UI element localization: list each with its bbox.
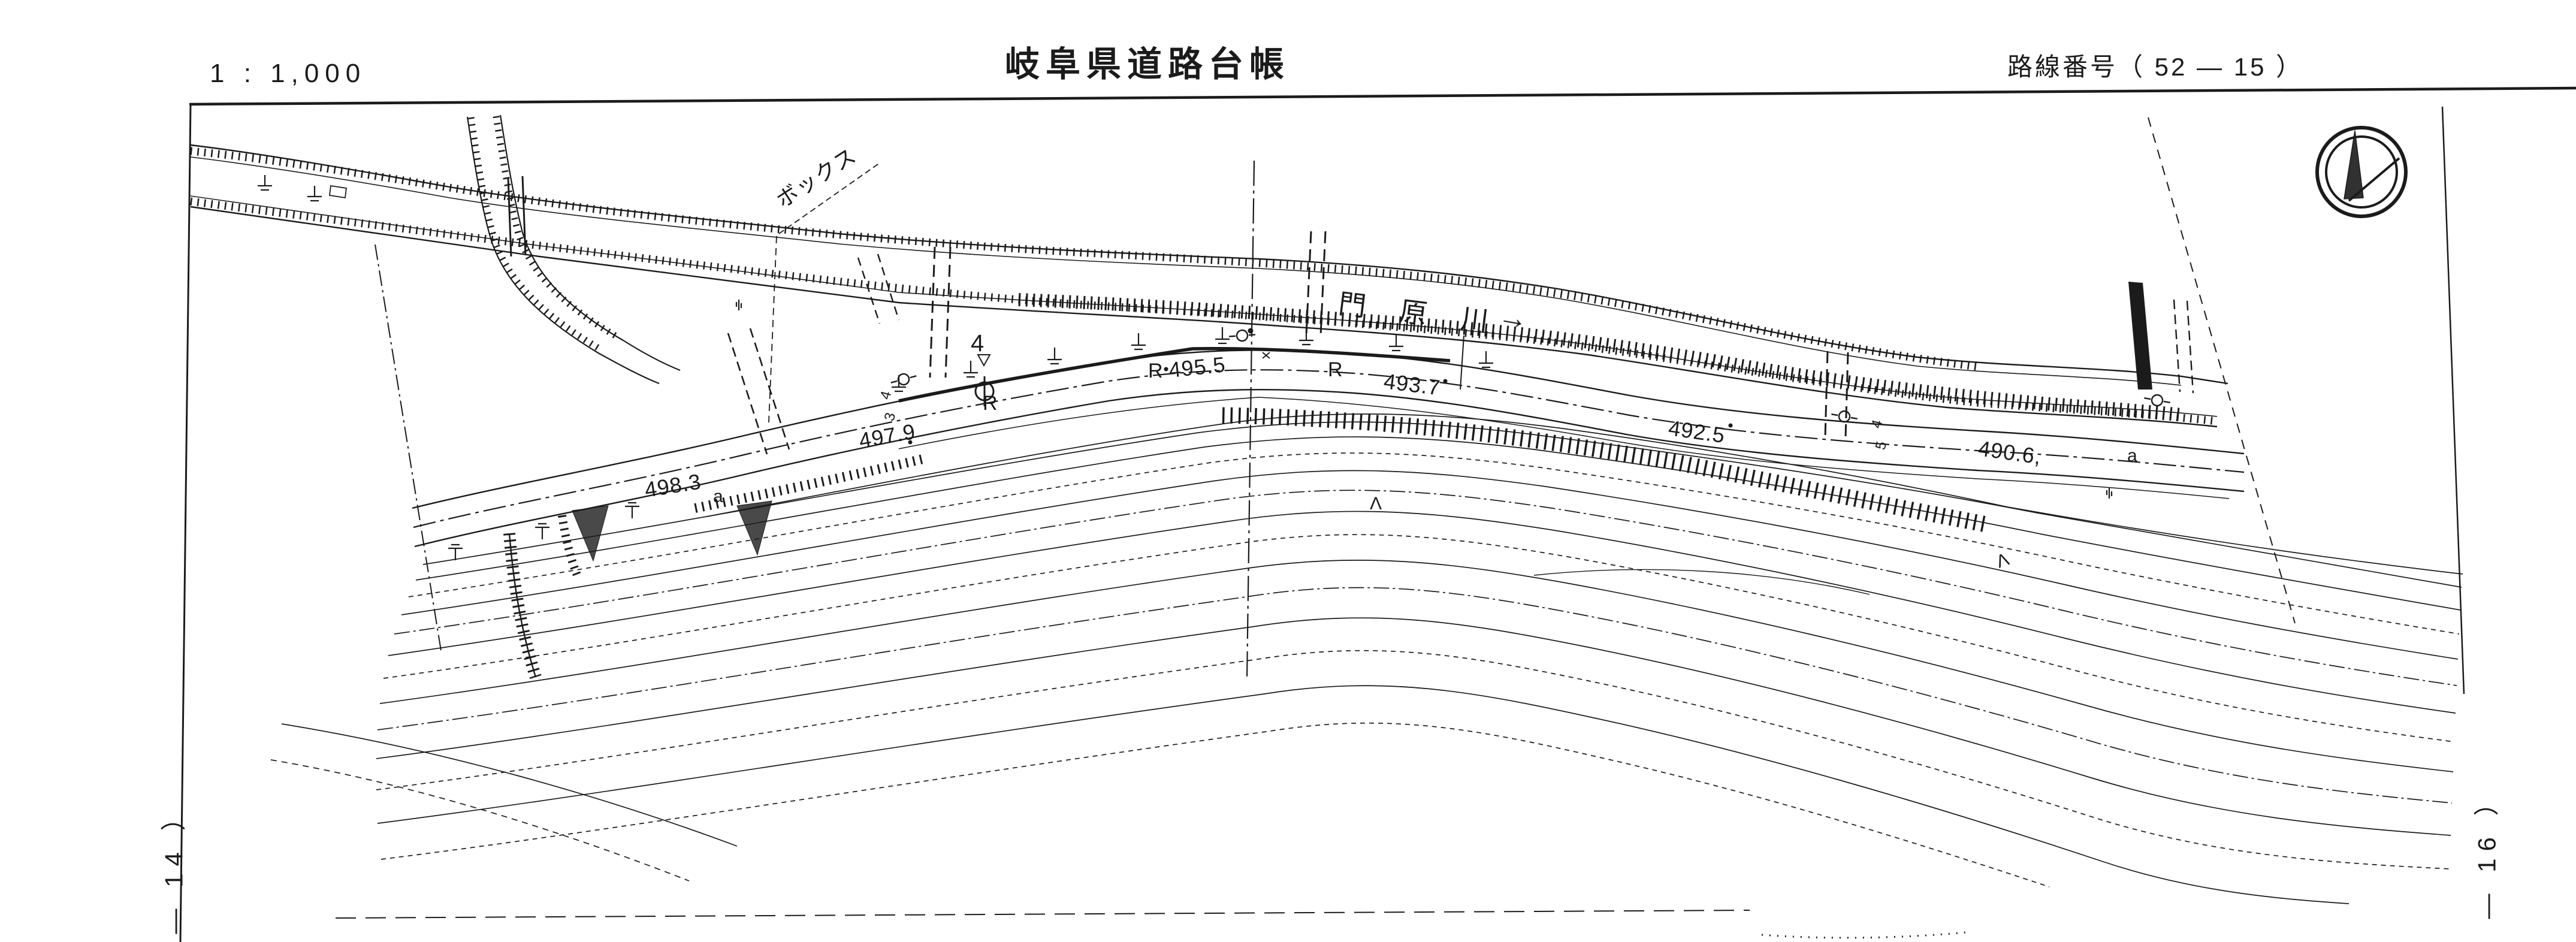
width-figure: 4	[1868, 418, 1886, 430]
retaining-walls	[509, 300, 2181, 677]
curve-marker: R	[1328, 358, 1343, 381]
culvert-label: ボックス	[772, 143, 861, 213]
spot-elevation: 498.3	[643, 469, 703, 502]
spot-elevation: 497.9	[857, 419, 917, 453]
river-flow-arrow: →	[1496, 298, 1531, 337]
sheet-frame	[180, 88, 2576, 942]
curve-marker: R	[983, 392, 998, 415]
compass-icon	[2317, 128, 2406, 216]
map-drawing: ボックス門 原 川→4495.5497.9498.3a493.7492.5490…	[0, 0, 2576, 942]
slope-mark: Λ	[1370, 494, 1382, 514]
spot-elevation: 495.5	[1168, 352, 1227, 382]
width-figure: 5	[1873, 440, 1891, 452]
width-figure: 4	[877, 390, 895, 401]
spot-elevation: 493.7	[1382, 369, 1442, 400]
road-ledger-sheet: 1 : 1,000 岐阜県道路台帳 路線番号（ 52 — 15 ） — 14 ）…	[0, 0, 2576, 942]
spot-elevation: 490.6,	[1977, 436, 2043, 469]
parcel-letter: a	[713, 487, 723, 506]
contour-lines	[271, 414, 2463, 904]
station-number: 4	[971, 330, 984, 357]
riverbank-hatch-upper	[191, 151, 1977, 367]
curve-marker: R	[1148, 360, 1163, 382]
slope-patches	[572, 501, 772, 561]
parcel-letter: a	[2127, 446, 2137, 466]
width-figure: 3	[881, 411, 899, 423]
bridge-deck-solid	[2128, 282, 2152, 390]
elevation-dots	[908, 367, 1733, 445]
slope-mark: Λ	[1994, 549, 2012, 572]
river-banks	[191, 145, 2228, 427]
